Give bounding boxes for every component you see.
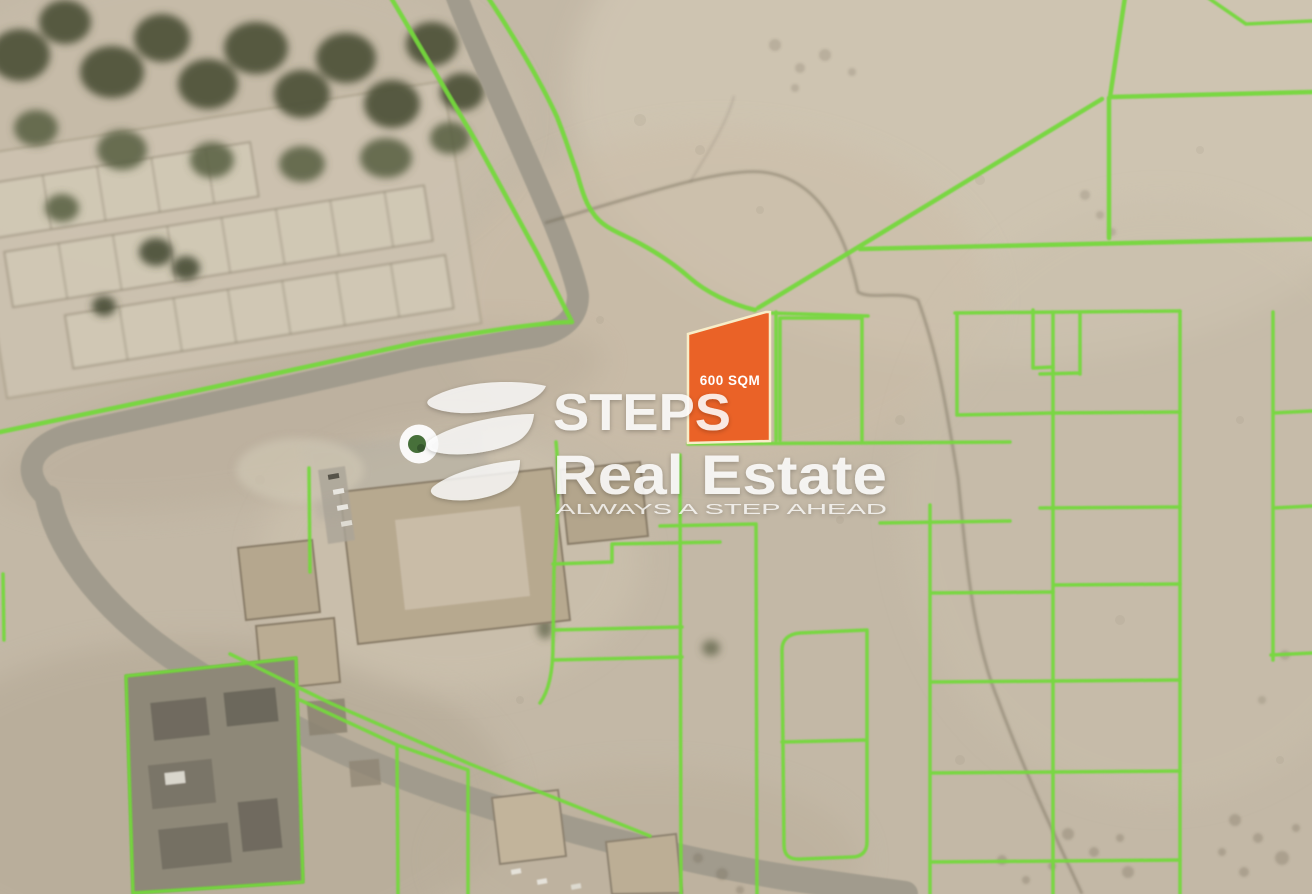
walled-compound: [126, 658, 303, 893]
watermark-tagline: ALWAYS A STEP AHEAD: [556, 501, 887, 518]
property-map-image: 600 SQM STEPS Real Estate ALWAYS A STEP …: [0, 0, 1312, 894]
satellite-map-svg: 600 SQM STEPS Real Estate ALWAYS A STEP …: [0, 0, 1312, 894]
watermark-brand-steps: STEPS: [553, 384, 731, 442]
watermark-brand-real-estate: Real Estate: [553, 443, 887, 506]
